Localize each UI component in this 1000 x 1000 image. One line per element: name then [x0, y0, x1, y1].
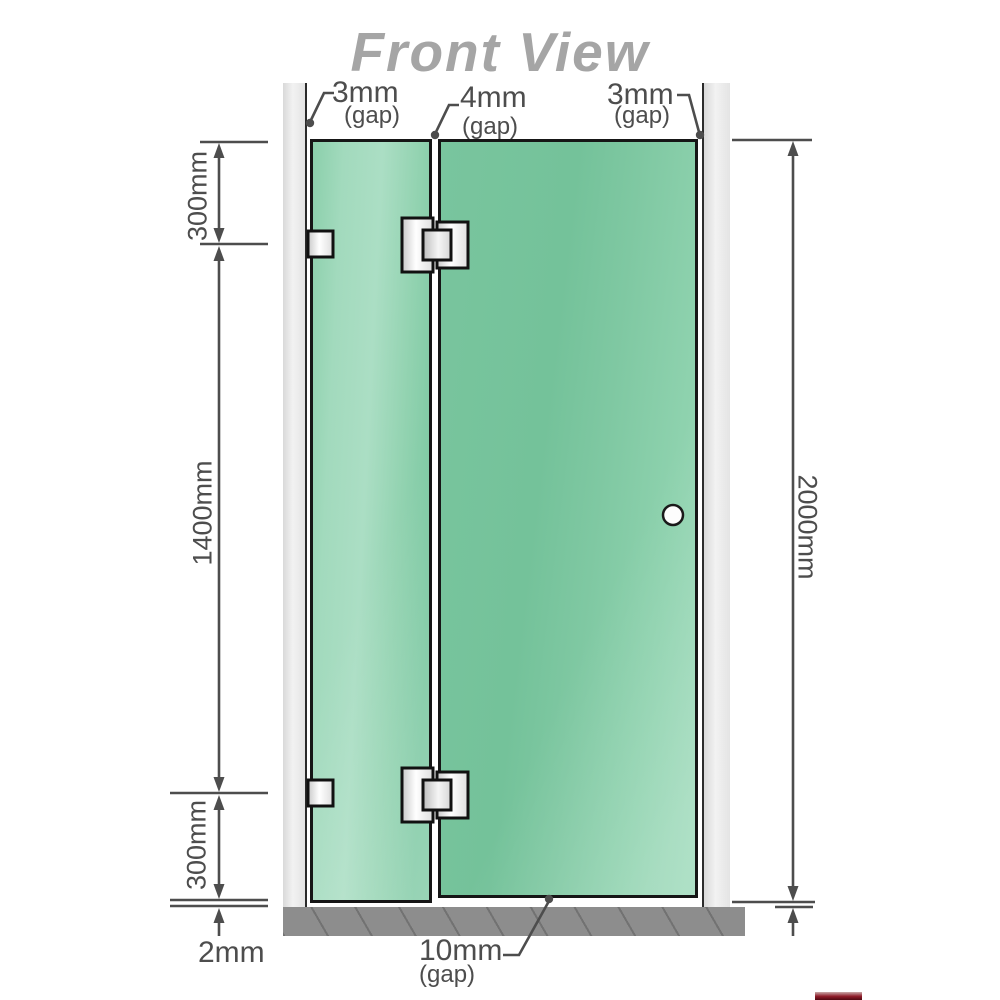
front-view-diagram: Front View — [0, 0, 1000, 1000]
door-handle — [663, 505, 683, 525]
leader-lines — [311, 93, 699, 955]
gap-left-qualifier: (gap) — [344, 104, 400, 128]
gap-middle-value: 4mm — [460, 83, 527, 113]
dim-middle-1400: 1400mm — [190, 460, 217, 565]
floor-gap-value: 2mm — [198, 938, 265, 968]
dimension-overlay — [0, 0, 1000, 1000]
wall-bracket-bottom — [308, 780, 333, 806]
gap-middle-qualifier: (gap) — [462, 115, 518, 139]
glass-hinge-bottom — [402, 768, 468, 822]
wall-bracket-top — [308, 231, 333, 257]
dim-top-300: 300mm — [185, 151, 212, 241]
watermark-fragment — [815, 992, 862, 1000]
gap-bottom-qualifier: (gap) — [419, 963, 475, 987]
dim-total-2000: 2000mm — [794, 474, 821, 579]
dim-bottom-300: 300mm — [184, 800, 211, 890]
gap-right-qualifier: (gap) — [614, 104, 670, 128]
glass-hinge-top — [402, 218, 468, 272]
leader-dots — [306, 119, 704, 903]
